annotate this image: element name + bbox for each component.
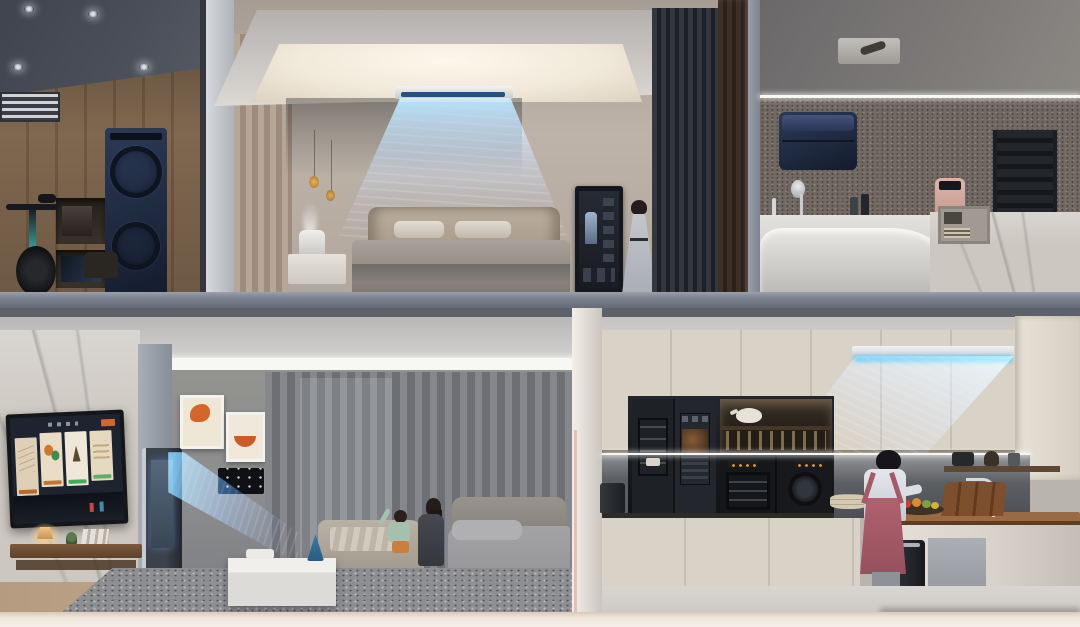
living-room-cove-light bbox=[130, 358, 585, 370]
card-art bbox=[18, 445, 35, 472]
tv-card bbox=[39, 432, 63, 487]
smart-home-cutaway-render bbox=[0, 0, 1080, 627]
books bbox=[81, 529, 109, 545]
water-heater-lid bbox=[782, 115, 854, 131]
kettle-icon bbox=[984, 451, 999, 466]
bedroom-woman-belt bbox=[630, 238, 648, 241]
cook-apron bbox=[860, 498, 906, 574]
slatted-wardrobe bbox=[652, 8, 718, 296]
bed-pillow bbox=[455, 221, 511, 238]
fridge-screen-food-image bbox=[682, 429, 708, 453]
cutting-boards bbox=[941, 482, 1007, 516]
fridge-display-screen bbox=[680, 413, 710, 485]
toiletry-bottle bbox=[850, 197, 858, 217]
pendant-light-bulb bbox=[326, 190, 335, 201]
pillar-pink-edge bbox=[574, 430, 577, 614]
mirror-thumbnails bbox=[603, 198, 614, 262]
glassware-row bbox=[726, 431, 826, 450]
fridge-dispenser-icon bbox=[646, 458, 660, 466]
bottom-slab-edge bbox=[0, 612, 1080, 627]
fridge-seethrough-panel bbox=[638, 418, 668, 476]
card-button bbox=[68, 479, 86, 484]
shelf-board bbox=[720, 426, 832, 430]
exercise-bike-wheel bbox=[16, 246, 56, 296]
tv-card-row bbox=[14, 430, 118, 492]
caddy-compartment bbox=[944, 212, 962, 224]
oven-door-racks bbox=[726, 472, 770, 510]
towel-warmer bbox=[993, 130, 1057, 218]
mirror-avatar bbox=[585, 212, 597, 244]
bed-pillow bbox=[394, 221, 444, 238]
bedroom-ac-vent-slot bbox=[401, 92, 505, 97]
bathroom-left-frame bbox=[748, 0, 760, 296]
tv-bottom-scene bbox=[13, 492, 124, 525]
caddy-compartment bbox=[944, 228, 970, 238]
toaster-icon bbox=[952, 452, 974, 466]
fridge-screen-topbar bbox=[682, 416, 708, 422]
toiletry-bottle bbox=[861, 194, 869, 217]
tv-card bbox=[89, 430, 113, 481]
fruit-icon bbox=[931, 502, 939, 509]
kitchen-base-cabinets bbox=[602, 518, 860, 586]
tv-logo-badge bbox=[101, 419, 115, 427]
wood-pillar-divider bbox=[718, 0, 748, 296]
scene-figure bbox=[90, 503, 94, 512]
spotlight-icon bbox=[24, 6, 34, 12]
tv-status-icons bbox=[48, 421, 78, 426]
pendant-light-bulb bbox=[309, 176, 319, 188]
bike-accessory bbox=[84, 252, 118, 278]
scene-figure bbox=[99, 501, 103, 511]
fridge-screen-menu-rows bbox=[682, 457, 708, 479]
pendant-light-icon bbox=[331, 140, 332, 192]
table-decor-white bbox=[246, 549, 274, 559]
child-shirt bbox=[388, 522, 410, 542]
microwave-round-door bbox=[788, 472, 822, 506]
tv-card bbox=[64, 431, 88, 486]
bathtub-front bbox=[760, 228, 950, 296]
fruit-icon bbox=[912, 498, 921, 507]
artwork-bird-shape bbox=[190, 404, 210, 422]
card-button bbox=[93, 474, 111, 479]
bedroom-window-frame bbox=[206, 0, 234, 296]
mid-floor-slab bbox=[0, 292, 1080, 308]
floating-console bbox=[10, 544, 142, 558]
niche-items bbox=[62, 206, 92, 236]
tv-screen bbox=[10, 414, 125, 525]
mirror-bottom-icons bbox=[583, 268, 615, 282]
bed-foot-blanket bbox=[352, 264, 570, 282]
child-shorts bbox=[392, 541, 409, 553]
washer-door bbox=[110, 146, 162, 198]
small-appliance-shelf bbox=[944, 466, 1060, 472]
spotlight-icon bbox=[139, 64, 149, 70]
tv-card bbox=[15, 437, 40, 496]
fruit-icon bbox=[922, 500, 931, 508]
coffee-machine bbox=[600, 483, 625, 513]
lower-ceiling-shadow-band bbox=[0, 308, 1080, 317]
laundry-air-vent bbox=[0, 92, 60, 122]
card-button bbox=[44, 480, 62, 485]
water-heater-seam bbox=[782, 140, 854, 142]
bedroom-woman-hair bbox=[631, 200, 647, 215]
oven-display-orange bbox=[728, 460, 758, 467]
wall-tv bbox=[6, 409, 129, 528]
balloon-art bbox=[51, 450, 59, 460]
landscape-art bbox=[93, 440, 110, 459]
sofa-seat-cushion bbox=[452, 520, 522, 540]
white-coffee-table bbox=[228, 558, 336, 606]
tree-art bbox=[72, 445, 81, 461]
humidifier bbox=[299, 230, 325, 256]
pendant-light-icon bbox=[314, 130, 315, 178]
microwave-display-orange bbox=[794, 460, 824, 467]
spotlight-icon bbox=[88, 11, 98, 17]
teapot-icon bbox=[736, 408, 762, 423]
nightstand bbox=[288, 254, 346, 296]
bathroom-led-strip bbox=[760, 95, 1080, 98]
canister-icon bbox=[1008, 453, 1020, 466]
spotlight-icon bbox=[13, 64, 23, 70]
pink-device-screen bbox=[939, 181, 961, 190]
mother-body bbox=[418, 514, 444, 566]
bathroom-ceiling bbox=[760, 0, 1080, 96]
cook-hair bbox=[876, 450, 901, 471]
purifier-handle bbox=[902, 543, 920, 547]
card-button bbox=[19, 489, 37, 494]
washer-control-panel bbox=[110, 133, 162, 140]
dryer-door bbox=[112, 222, 160, 270]
exercise-bike-seat bbox=[38, 194, 56, 203]
